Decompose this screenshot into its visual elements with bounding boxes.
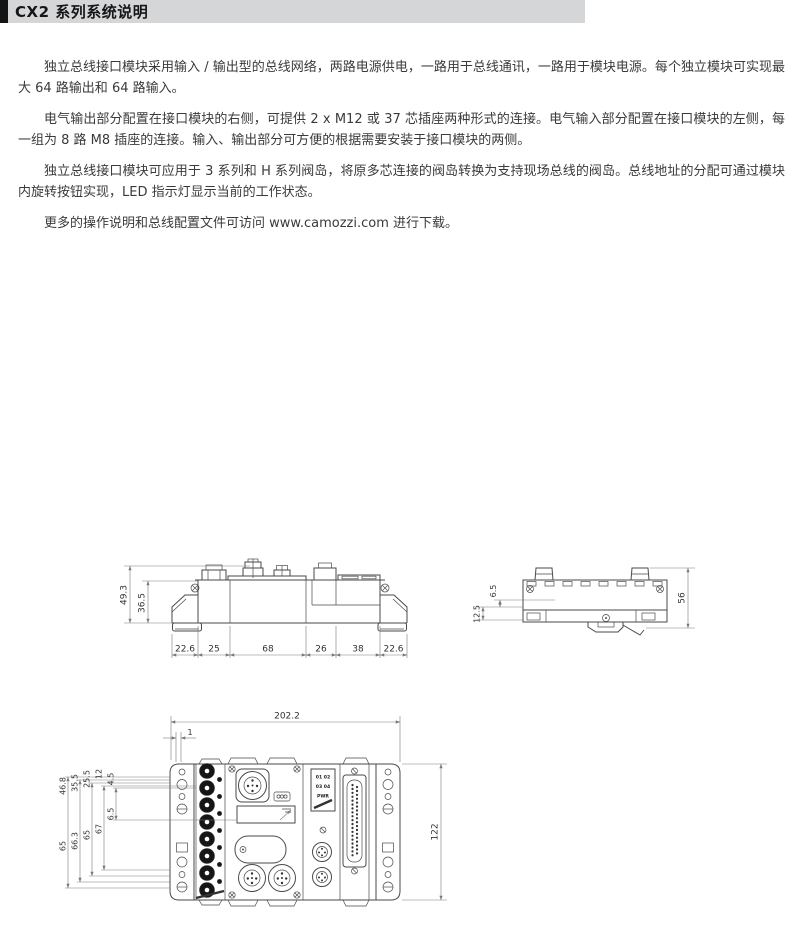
drawing-front-view: 01 02 03 04 PWR 202.2 1 122	[55, 700, 460, 928]
dim-label: 6.5	[107, 808, 116, 821]
led-row-label: PWR	[317, 794, 329, 800]
dim-label: 22.6	[383, 645, 403, 655]
page-title: CX2 系列系统说明	[15, 1, 148, 22]
led-row-label: 03 04	[316, 784, 330, 790]
module-outline-side-right	[523, 568, 667, 635]
dim-label: 12	[95, 769, 104, 779]
dim-label: 38	[352, 645, 364, 655]
dim-label: 122	[431, 823, 441, 840]
dsub-37-connector	[343, 768, 366, 874]
dim-label: 35.5	[71, 774, 80, 792]
led-panel-column: 01 02 03 04 PWR	[311, 769, 335, 887]
dim-label: 12.5	[473, 605, 482, 623]
dim-label: 65	[83, 830, 92, 840]
dim-label: 25	[208, 645, 219, 655]
section-header: CX2 系列系统说明	[0, 0, 585, 23]
dim-label: 56	[678, 592, 688, 604]
dim-label: 25.5	[83, 770, 92, 788]
paragraph-1: 独立总线接口模块采用输入 / 输出型的总线网络，两路电源供电，一路用于总线通讯，…	[18, 57, 785, 99]
dim-label: 22.6	[175, 645, 195, 655]
body-text: 独立总线接口模块采用输入 / 输出型的总线网络，两路电源供电，一路用于总线通讯，…	[0, 52, 800, 244]
right-end-plate-holes	[383, 769, 394, 892]
dim-label: 67	[95, 824, 104, 834]
dim-label: 202.2	[274, 712, 300, 722]
central-panel	[229, 766, 300, 898]
dim-label: 46.8	[59, 777, 68, 795]
dim-label: 68	[262, 645, 274, 655]
drawing-side-view-left: 49.3 36.5 22.6 25 68 26 38 22.6	[60, 548, 420, 670]
paragraph-2: 电气输出部分配置在接口模块的右侧，可提供 2 x M12 或 37 芯插座两种形…	[18, 109, 785, 151]
left-end-plate-holes	[177, 769, 188, 892]
aux-connector	[274, 792, 290, 801]
dim-label: 1	[187, 728, 192, 737]
paragraph-4: 更多的操作说明和总线配置文件可访问 www.camozzi.com 进行下载。	[18, 213, 785, 234]
dim-label: 65	[59, 841, 68, 851]
paragraph-3: 独立总线接口模块可应用于 3 系列和 H 系列阀岛，将原多芯连接的阀岛转换为支持…	[18, 161, 785, 203]
m8-connector-block	[196, 764, 224, 899]
dimensions-side-right: 6.5 12.5 56	[473, 568, 696, 628]
m12-power-connectors	[239, 865, 296, 892]
module-outline-side-left	[172, 559, 407, 631]
dim-label: 26	[315, 645, 327, 655]
dim-label: 36.5	[138, 593, 148, 613]
header-accent-tab	[0, 0, 8, 23]
led-row-label: 01 02	[316, 775, 330, 781]
dim-label: 4.5	[107, 773, 116, 786]
dim-label: 66.3	[71, 832, 80, 850]
dim-label: 49.3	[120, 585, 130, 605]
dim-label: 6.5	[489, 585, 498, 598]
drawing-side-view-right: 6.5 12.5 56	[450, 548, 720, 648]
catalog-page: { "header": { "title": "CX2 系列系统说明" }, "…	[0, 0, 800, 932]
